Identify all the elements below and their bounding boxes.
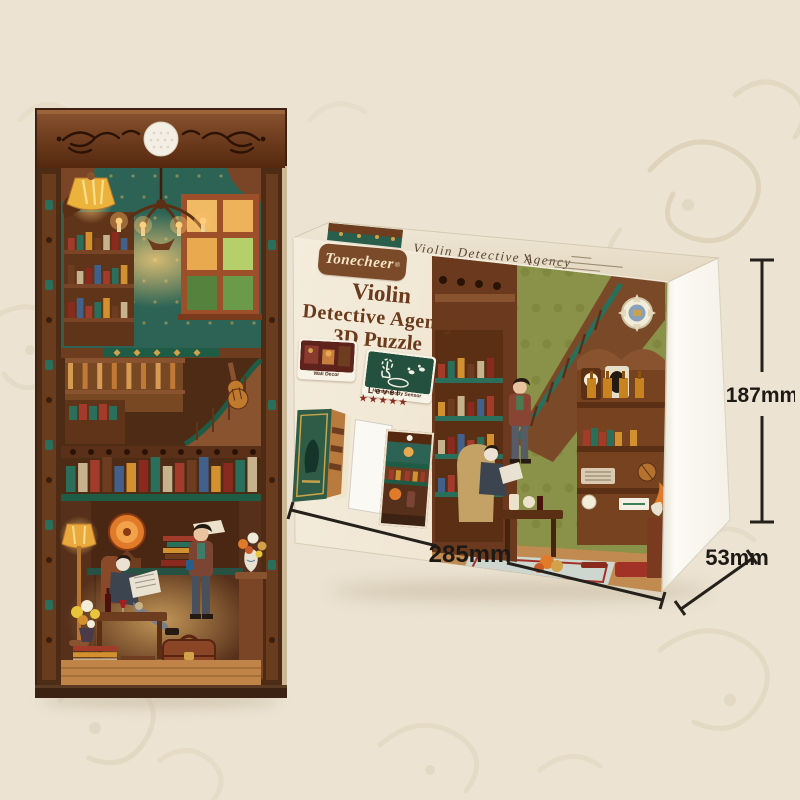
nook-staircase: [61, 358, 261, 446]
nook-banner: [103, 348, 219, 357]
nook-header-board: [37, 110, 285, 168]
nook-study-room: [59, 501, 267, 685]
registered-mark: ®: [394, 262, 400, 269]
book-nook-closed-preview: [288, 404, 362, 511]
dimension-width-label: 285mm: [429, 541, 512, 568]
box-art-hutch: [577, 349, 665, 545]
nook-window: [178, 194, 262, 320]
sensor-ball-icon: [144, 122, 178, 156]
book-nook-front-preview: [379, 429, 434, 528]
wall-decor-thumbnail: [300, 340, 355, 373]
product-previews: [287, 404, 456, 536]
box-side-face: [662, 258, 730, 592]
dimension-height-label: 187mm: [726, 384, 795, 407]
nook-fretwork: [61, 446, 261, 458]
nook-upper-bookshelf: [64, 212, 134, 346]
book-nook: [35, 100, 287, 700]
nook-book-row: [61, 457, 261, 501]
feature-wall-decor: Wall Decor: [297, 338, 357, 382]
brand-name: Tonecheer: [324, 251, 394, 274]
nook-upper-room: [61, 168, 262, 348]
dimension-depth-label: 53mm: [705, 545, 769, 570]
